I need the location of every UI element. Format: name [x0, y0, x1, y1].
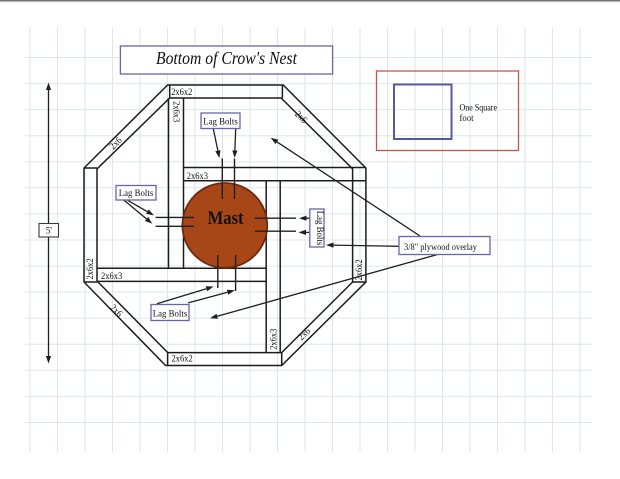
svg-text:foot: foot: [460, 113, 474, 124]
svg-text:Bottom of Crow's Nest: Bottom of Crow's Nest: [156, 48, 298, 68]
svg-text:One Square: One Square: [460, 103, 498, 113]
svg-text:2x6x3: 2x6x3: [268, 329, 279, 350]
svg-text:Lag Bolts: Lag Bolts: [153, 309, 188, 320]
svg-text:2x6x3: 2x6x3: [101, 271, 122, 282]
svg-text:3/8" plywood overlay: 3/8" plywood overlay: [404, 242, 477, 253]
svg-text:2x6x2: 2x6x2: [354, 259, 365, 280]
svg-text:Lag Bolts: Lag Bolts: [203, 116, 238, 127]
svg-text:Lag Bolts: Lag Bolts: [119, 188, 154, 199]
svg-text:2x6x3: 2x6x3: [170, 101, 181, 122]
svg-text:2x6x2: 2x6x2: [171, 87, 192, 98]
svg-text:5': 5': [46, 225, 53, 235]
svg-text:2x6x3: 2x6x3: [187, 171, 208, 182]
svg-text:2x6x2: 2x6x2: [85, 258, 96, 279]
svg-text:Mast: Mast: [208, 208, 244, 229]
svg-text:Lag Bolts: Lag Bolts: [314, 211, 325, 246]
svg-text:2x6x2: 2x6x2: [172, 353, 193, 364]
